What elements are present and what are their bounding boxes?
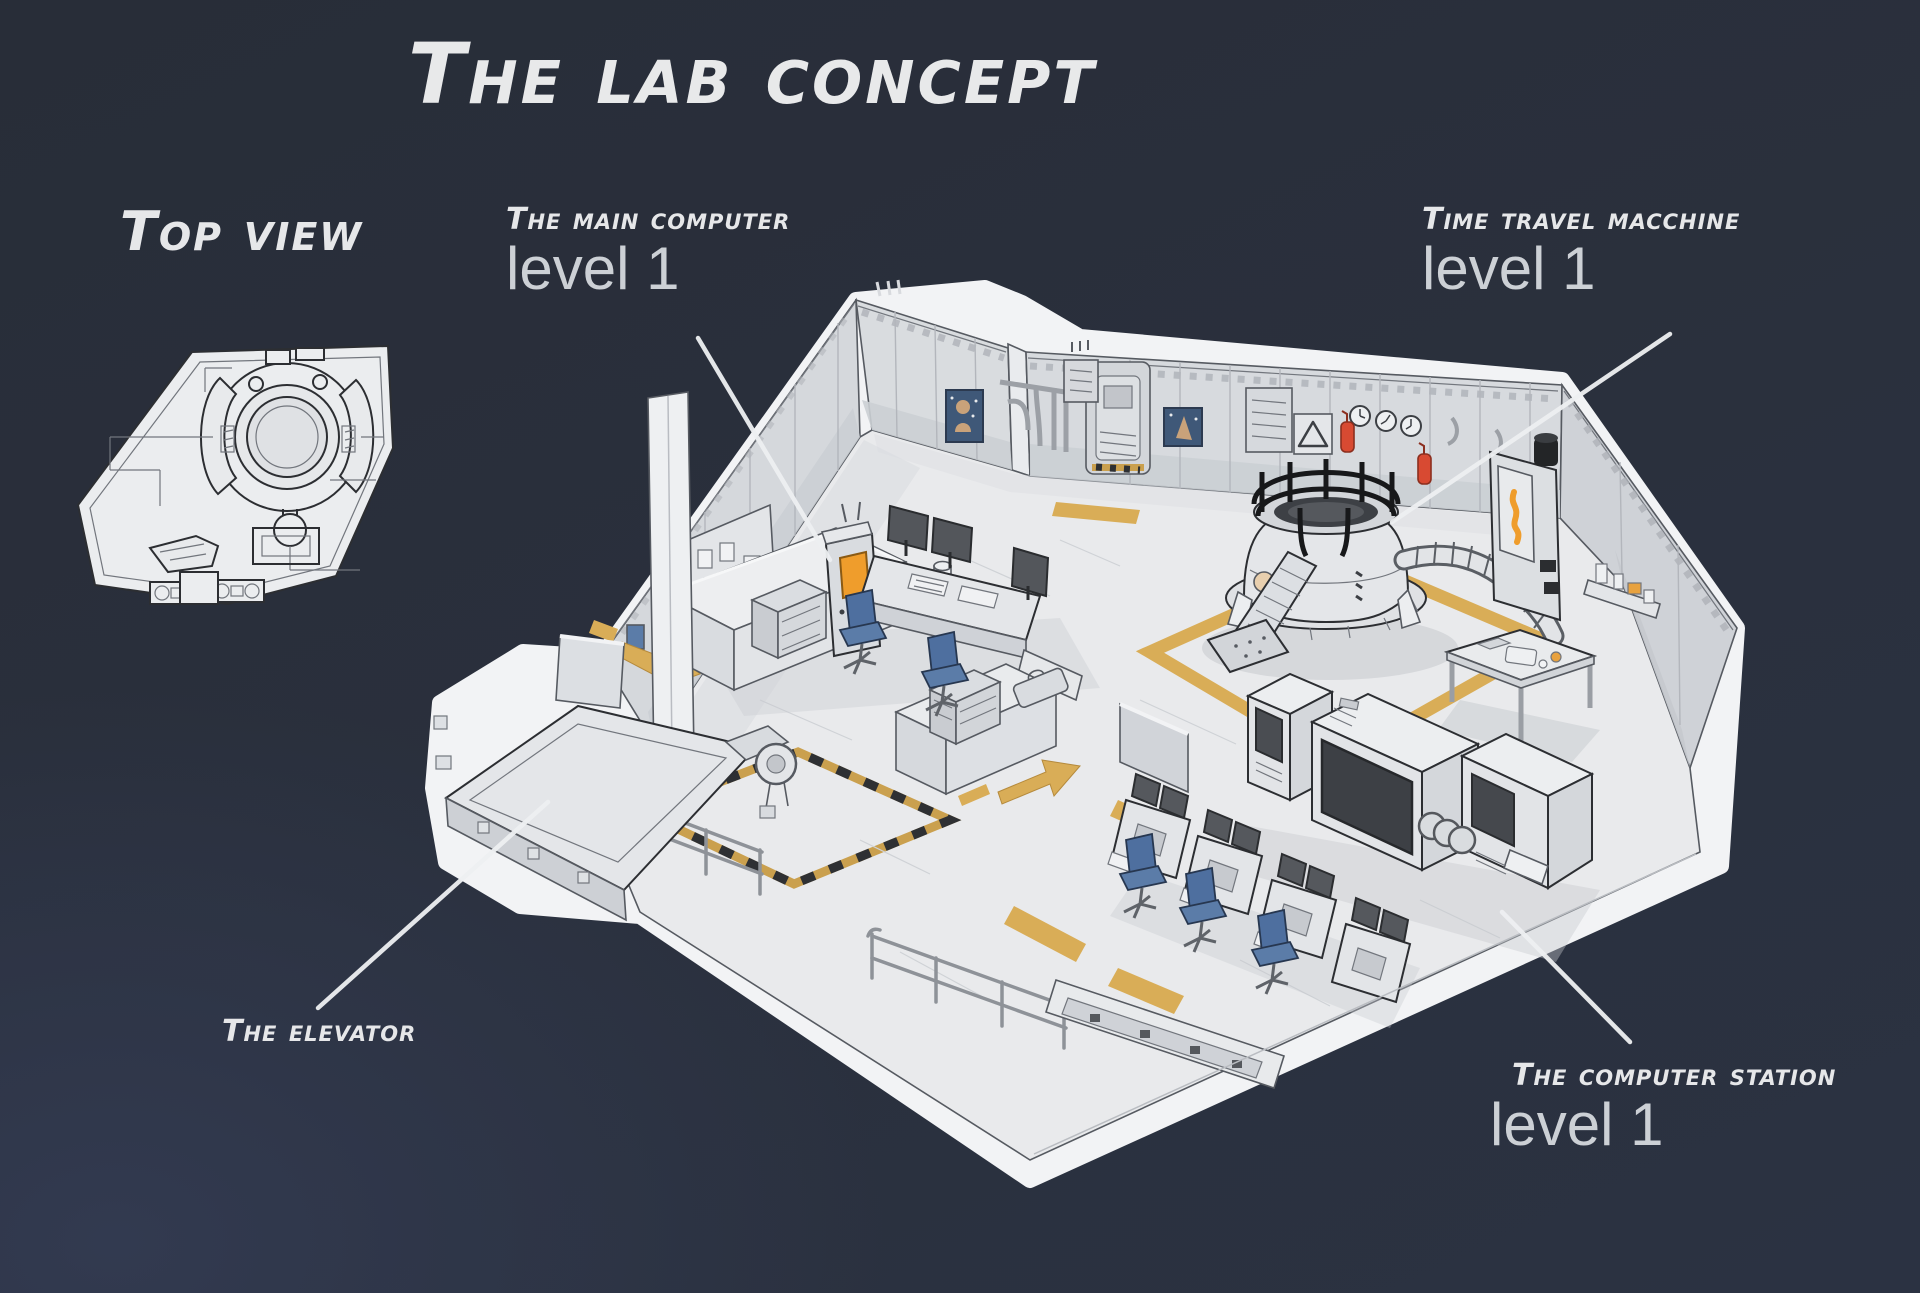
top-view-label: Top view <box>120 204 363 261</box>
annotation-time-machine: Time travel macchine level 1 <box>1422 204 1740 299</box>
elevator-guard <box>556 636 624 708</box>
computer-station-level: level 1 <box>1490 1094 1836 1155</box>
top-view-plan <box>78 346 393 604</box>
lab-room <box>433 280 1737 1180</box>
time-machine-level: level 1 <box>1422 238 1740 299</box>
main-computer-label: The main computer <box>506 204 790 236</box>
wall-machine <box>1490 433 1560 620</box>
time-machine-label: Time travel macchine <box>1422 204 1740 236</box>
page-title: The lab concept <box>408 30 1097 118</box>
main-computer-level: level 1 <box>506 238 790 299</box>
warning-triangle-sign <box>1294 414 1332 454</box>
hatch-panel <box>1246 388 1292 452</box>
computer-station-label: The computer station <box>1512 1060 1836 1092</box>
elevator-label: The elevator <box>222 1016 416 1048</box>
top-view-door <box>180 572 218 604</box>
poster-rocket <box>1164 408 1202 446</box>
poster-monkey <box>946 390 983 442</box>
annotation-computer-station: The computer station level 1 <box>1490 1060 1836 1155</box>
annotation-main-computer: The main computer level 1 <box>506 204 790 299</box>
